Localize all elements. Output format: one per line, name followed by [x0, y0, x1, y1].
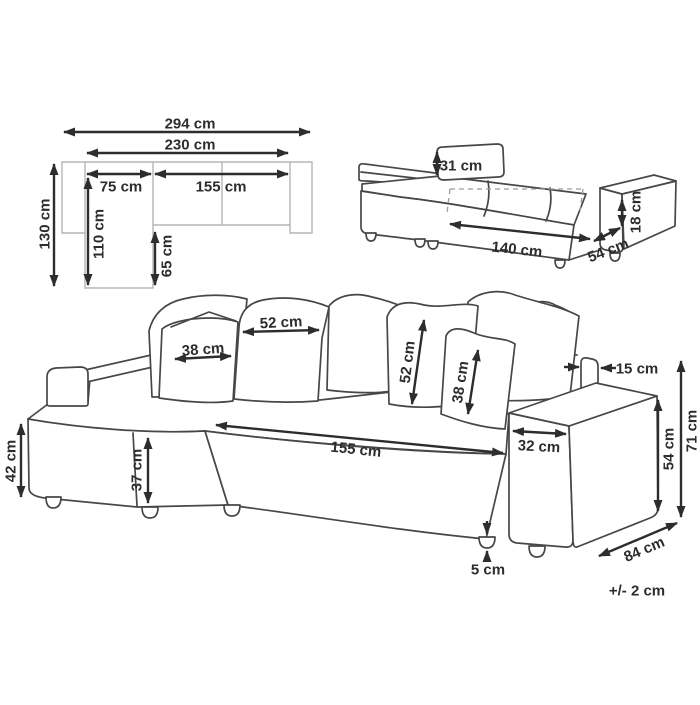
chaise-front-height-label: 37 cm: [128, 449, 145, 492]
sofa-leg: [479, 537, 495, 548]
bed-leg: [555, 260, 565, 268]
left-armrest-front-block: [47, 367, 88, 406]
overall-height-label: 71 cm: [683, 410, 700, 453]
plan-seams: [85, 162, 290, 233]
backrest-thickness-label: 15 cm: [616, 360, 659, 377]
plan-total-width-label: 294 cm: [165, 115, 216, 132]
sofa-leg: [142, 507, 158, 518]
bed-leg: [415, 239, 425, 247]
plan-inner-width-label: 230 cm: [165, 136, 216, 153]
depth-label: 84 cm: [621, 534, 667, 566]
front-view: 42 cm 37 cm 155 cm 52 cm 38 cm 52 cm 38 …: [2, 292, 700, 600]
diagram-canvas: 294 cm 230 cm 75 cm 155 cm 130 cm 110 cm…: [0, 0, 700, 700]
sofa-leg: [529, 546, 545, 557]
leg-height-label: 5 cm: [471, 561, 505, 578]
sofa-leg: [224, 505, 240, 516]
sofa-leg: [46, 497, 61, 508]
plan-chaise-length-label: 110 cm: [90, 209, 107, 259]
large-pillow-width-label: 52 cm: [259, 313, 302, 332]
bed-leg: [428, 241, 438, 249]
bed-platform-height-label: 18 cm: [627, 191, 644, 234]
plan-chaise-protrusion-label: 65 cm: [158, 235, 175, 278]
plan-total-depth-label: 130 cm: [36, 199, 53, 250]
plan-view: 294 cm 230 cm 75 cm 155 cm 130 cm 110 cm…: [36, 115, 312, 288]
plan-seat-length-label: 155 cm: [196, 178, 247, 195]
plan-chaise-width-label: 75 cm: [100, 178, 143, 195]
bed-backrest-height-label: 31 cm: [440, 157, 483, 174]
armrest-width-label: 32 cm: [517, 437, 560, 456]
sofa-dimension-diagram: 294 cm 230 cm 75 cm 155 cm 130 cm 110 cm…: [0, 0, 700, 700]
armrest-height-label: 54 cm: [660, 428, 677, 471]
seat-height-label: 42 cm: [2, 440, 19, 483]
bed-leg: [366, 233, 376, 241]
small-pillow-width-label: 38 cm: [181, 340, 225, 360]
tolerance-note: +/- 2 cm: [609, 582, 665, 599]
bed-view: 31 cm 140 cm 54 cm 18 cm: [359, 144, 676, 268]
pillow-small-left: [159, 318, 238, 402]
